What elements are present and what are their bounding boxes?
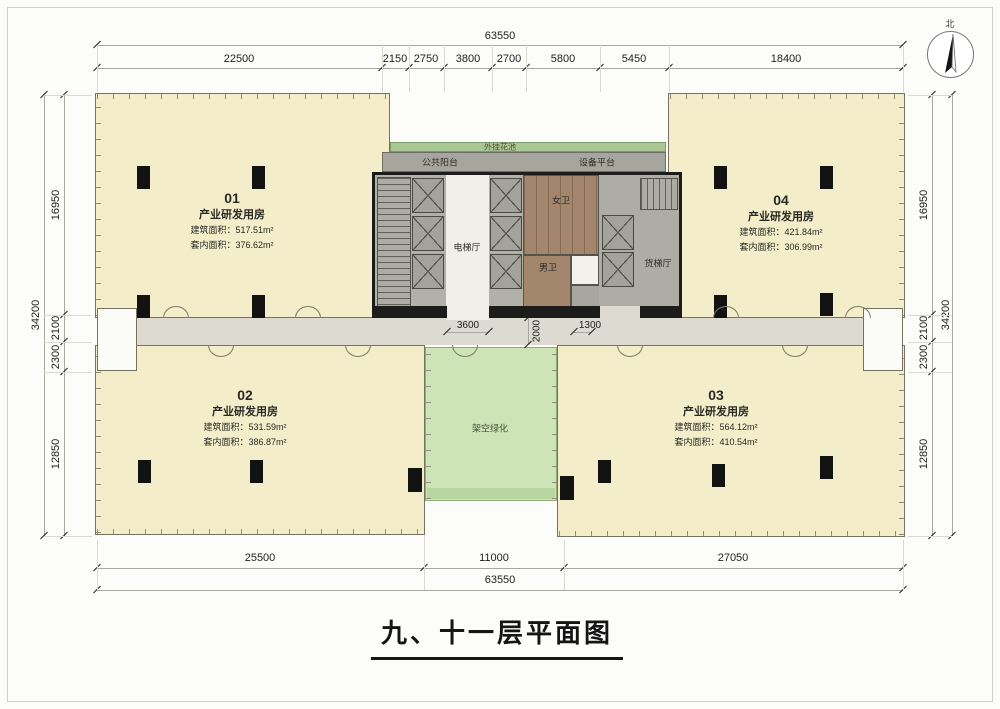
dim-line <box>447 332 489 333</box>
elevator-shaft <box>490 216 522 251</box>
dim-extension <box>444 45 445 92</box>
light-well <box>571 255 599 285</box>
dim-extension <box>44 95 92 96</box>
planter-label: 外挂花池 <box>484 142 516 153</box>
compass-needle <box>928 32 973 77</box>
north-label: 北 <box>945 17 954 30</box>
unit-type: 产业研发用房 <box>190 208 273 223</box>
dim-label: 2000 <box>532 320 543 342</box>
freight-elevator-shaft <box>602 215 634 250</box>
unit-gross-area: 建筑面积：421.84m² <box>739 225 822 240</box>
window-band <box>559 531 903 536</box>
unit-type: 产业研发用房 <box>674 405 757 420</box>
unit-net-area: 套内面积：410.54m² <box>674 435 757 450</box>
dim-extension <box>382 45 383 92</box>
column <box>252 166 265 189</box>
staircase-east <box>640 178 678 210</box>
column <box>598 460 611 483</box>
dim-label: 25500 <box>245 552 276 564</box>
dim-extension <box>908 315 952 316</box>
door-swing <box>845 306 871 318</box>
west-balcony <box>97 308 137 371</box>
dim-label: 5800 <box>551 53 575 65</box>
window-band <box>899 95 904 316</box>
core-opening <box>600 306 640 320</box>
mens-restroom-label: 男卫 <box>539 261 557 274</box>
column <box>714 166 727 189</box>
unit-type: 产业研发用房 <box>739 210 822 225</box>
greenery-label: 架空绿化 <box>472 422 508 435</box>
dim-label: 2300 <box>50 345 62 369</box>
dim-label: 2700 <box>497 53 521 65</box>
window-band <box>552 349 557 499</box>
dim-label: 12850 <box>918 439 930 470</box>
elevator-shaft <box>490 254 522 289</box>
dim-line <box>97 45 903 46</box>
window-band <box>96 347 101 533</box>
dim-label: 2100 <box>50 316 62 340</box>
dim-line <box>97 68 903 69</box>
unit-gross-area: 建筑面积：517.51m² <box>190 223 273 238</box>
dim-label: 5450 <box>622 53 646 65</box>
unit-02-label: 02 产业研发用房 建筑面积：531.59m² 套内面积：386.87m² <box>203 387 286 450</box>
dim-extension <box>669 45 670 92</box>
womens-restroom-label: 女卫 <box>552 194 570 207</box>
dim-label: 16950 <box>50 190 62 221</box>
dim-label: 3600 <box>457 320 479 331</box>
dim-label: 2150 <box>383 53 407 65</box>
column <box>820 456 833 479</box>
door-swing <box>295 306 321 318</box>
elevator-shaft <box>490 178 522 213</box>
elevator-shaft <box>412 254 444 289</box>
core-wall <box>489 306 600 318</box>
dim-label: 12850 <box>50 439 62 470</box>
column <box>137 295 150 318</box>
public-balcony-label: 公共阳台 <box>422 156 458 169</box>
dim-label: 16950 <box>918 190 930 221</box>
column <box>820 166 833 189</box>
greenery-edge <box>427 488 555 499</box>
dim-label: 63550 <box>485 574 516 586</box>
womens-restroom <box>523 175 599 255</box>
door-swing <box>163 306 189 318</box>
dim-line <box>952 95 953 536</box>
core-wall <box>372 306 447 318</box>
dim-extension <box>97 45 98 92</box>
dim-extension <box>564 540 565 590</box>
window-band <box>97 94 388 99</box>
dim-extension <box>600 45 601 92</box>
dim-label: 2100 <box>918 316 930 340</box>
dim-label: 63550 <box>485 30 516 42</box>
dim-label: 3800 <box>456 53 480 65</box>
dim-extension <box>908 342 952 343</box>
dim-line <box>97 568 903 569</box>
window-band <box>670 94 903 99</box>
unit-01-label: 01 产业研发用房 建筑面积：517.51m² 套内面积：376.62m² <box>190 190 273 253</box>
column <box>408 468 422 492</box>
corridor <box>137 318 863 345</box>
column <box>137 166 150 189</box>
dim-extension <box>908 95 952 96</box>
dim-extension <box>492 45 493 92</box>
door-swing <box>208 345 234 357</box>
dim-extension <box>44 315 92 316</box>
freight-elevator-shaft <box>602 252 634 287</box>
dim-extension <box>409 45 410 92</box>
window-band <box>97 529 423 534</box>
unit-04-label: 04 产业研发用房 建筑面积：421.84m² 套内面积：306.99m² <box>739 192 822 255</box>
window-band <box>426 349 431 499</box>
dim-extension <box>44 342 92 343</box>
unit-net-area: 套内面积：306.99m² <box>739 240 822 255</box>
column <box>820 293 833 316</box>
elevator-hall-label: 电梯厅 <box>453 241 480 254</box>
door-swing <box>345 345 371 357</box>
window-band <box>899 347 904 535</box>
dim-extension <box>903 45 904 92</box>
column <box>712 464 725 487</box>
drawing-title: 九、十一层平面图 <box>371 613 623 660</box>
dim-label: 11000 <box>479 552 509 564</box>
dim-extension <box>44 372 92 373</box>
unit-gross-area: 建筑面积：564.12m² <box>674 420 757 435</box>
dim-extension <box>44 536 92 537</box>
unit-03-label: 03 产业研发用房 建筑面积：564.12m² 套内面积：410.54m² <box>674 387 757 450</box>
door-swing <box>452 345 478 357</box>
dim-extension <box>908 536 952 537</box>
unit-number: 03 <box>674 387 757 405</box>
dim-label: 1300 <box>579 320 601 331</box>
unit-number: 01 <box>190 190 273 208</box>
unit-number: 02 <box>203 387 286 405</box>
dim-extension <box>97 540 98 590</box>
dim-line <box>528 318 529 345</box>
dim-extension <box>903 540 904 590</box>
column <box>138 460 151 483</box>
core-opening <box>447 306 489 320</box>
staircase-west <box>377 177 411 307</box>
floor-plan-canvas: 63550 22500 2150 2750 3800 2700 5800 545… <box>0 0 1000 709</box>
dim-extension <box>526 45 527 92</box>
door-swing <box>713 306 739 318</box>
elevator-shaft <box>412 178 444 213</box>
north-arrow-icon <box>927 31 974 78</box>
unit-net-area: 套内面积：376.62m² <box>190 238 273 253</box>
column <box>560 476 574 500</box>
dim-extension <box>908 372 952 373</box>
dim-label: 34200 <box>30 300 42 331</box>
column <box>250 460 263 483</box>
planter-strip <box>390 142 666 152</box>
dim-label: 2300 <box>918 345 930 369</box>
freight-hall-label: 货梯厅 <box>644 257 671 270</box>
core-wall <box>640 306 682 318</box>
unit-number: 04 <box>739 192 822 210</box>
dim-label: 2750 <box>414 53 438 65</box>
door-swing <box>782 345 808 357</box>
dim-line <box>97 590 903 591</box>
elevator-shaft <box>412 216 444 251</box>
dim-label: 27050 <box>718 552 749 564</box>
unit-net-area: 套内面积：386.87m² <box>203 435 286 450</box>
door-swing <box>617 345 643 357</box>
dim-label: 18400 <box>771 53 802 65</box>
equipment-platform-label: 设备平台 <box>579 156 615 169</box>
unit-gross-area: 建筑面积：531.59m² <box>203 420 286 435</box>
column <box>252 295 265 318</box>
unit-type: 产业研发用房 <box>203 405 286 420</box>
window-band <box>96 95 101 316</box>
dim-label: 22500 <box>224 53 255 65</box>
